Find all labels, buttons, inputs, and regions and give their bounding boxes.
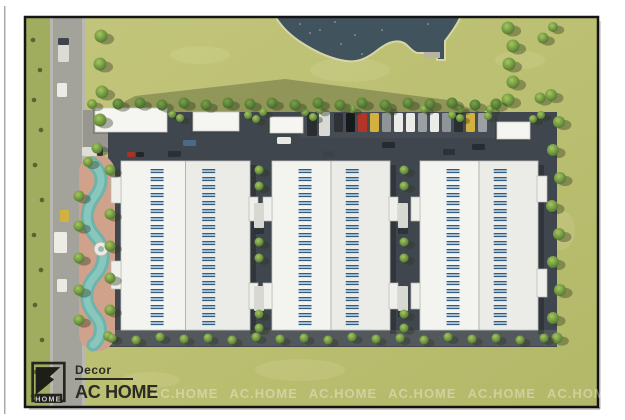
roof-skylight: [151, 265, 164, 266]
roof-skylight: [346, 180, 359, 181]
car: [183, 140, 196, 146]
roof-skylight: [151, 201, 164, 202]
roof-skylight: [299, 273, 312, 274]
palm-tree: [201, 100, 212, 111]
roof-skylight: [346, 201, 359, 202]
palm-tree: [470, 100, 481, 111]
grass-left-strip: [25, 17, 50, 407]
watermark-text: AC.HOME: [309, 386, 377, 401]
car: [323, 151, 334, 157]
office-building: [497, 122, 530, 139]
car: [443, 149, 455, 155]
shrub: [33, 303, 38, 308]
palm-tree: [113, 99, 124, 110]
warehouse-roof-half-tint: [331, 161, 390, 330]
roof-skylight: [299, 225, 312, 226]
roof-skylight: [346, 252, 359, 253]
tree: [492, 334, 501, 343]
tree: [444, 333, 453, 342]
roof-skylight: [202, 196, 215, 197]
palm-tree: [403, 98, 414, 109]
roof-skylight: [202, 188, 215, 189]
tree: [74, 221, 85, 232]
tree: [400, 324, 409, 333]
roof-skylight: [494, 252, 507, 253]
roof-skylight: [202, 260, 215, 261]
tree: [83, 157, 93, 167]
roof-skylight: [202, 249, 215, 250]
road-vehicle: [57, 83, 67, 97]
roof-skylight: [346, 281, 359, 282]
watermark-row: AC.HOME AC.HOME AC.HOME AC.HOME AC.HOME …: [150, 386, 625, 401]
roof-skylight: [346, 217, 359, 218]
roof-skylight: [299, 220, 312, 221]
roof-skylight: [494, 180, 507, 181]
pond-sparkle: [354, 34, 356, 36]
tree: [94, 114, 107, 127]
roof-skylight: [151, 321, 164, 322]
tree: [538, 33, 549, 44]
roof-skylight: [494, 212, 507, 213]
dock-truck-cab: [398, 228, 408, 234]
roof-skylight: [494, 289, 507, 290]
roof-skylight: [447, 281, 460, 282]
roof-skylight: [299, 201, 312, 202]
roof-skylight: [494, 188, 507, 189]
roof-skylight: [346, 321, 359, 322]
roof-skylight: [299, 204, 312, 205]
roof-skylight: [494, 217, 507, 218]
car: [472, 144, 485, 150]
roof-skylight: [346, 172, 359, 173]
roof-skylight: [202, 225, 215, 226]
roof-skylight: [346, 233, 359, 234]
tree: [324, 336, 333, 345]
roof-skylight: [447, 273, 460, 274]
tree: [502, 22, 515, 35]
roof-skylight: [202, 300, 215, 301]
roof-skylight: [346, 292, 359, 293]
tree: [554, 284, 566, 296]
parked-car: [382, 113, 391, 132]
pond-sparkle: [381, 29, 383, 31]
logo-block: HOME Decor AC HOME: [30, 360, 158, 406]
palm-tree: [447, 98, 458, 109]
roof-skylight: [494, 276, 507, 277]
roof-skylight: [151, 172, 164, 173]
roof-skylight: [202, 228, 215, 229]
roof-skylight: [346, 169, 359, 170]
roof-skylight: [494, 268, 507, 269]
shrub: [40, 338, 45, 343]
roof-skylight: [151, 228, 164, 229]
roof-skylight: [346, 220, 359, 221]
tree: [252, 115, 260, 123]
roof-skylight: [151, 252, 164, 253]
grass-patch: [170, 46, 230, 64]
tree: [92, 143, 103, 154]
palm-tree: [135, 98, 146, 109]
tree: [132, 336, 141, 345]
tree: [456, 114, 464, 122]
roof-skylight: [346, 193, 359, 194]
roof-skylight: [494, 196, 507, 197]
roof-skylight: [299, 177, 312, 178]
loading-dock-canopy: [537, 176, 547, 202]
roof-skylight: [299, 300, 312, 301]
roof-skylight: [202, 273, 215, 274]
roof-skylight: [151, 233, 164, 234]
palm-tree: [491, 99, 502, 110]
tree: [105, 209, 116, 220]
tree: [300, 334, 309, 343]
tree: [105, 165, 116, 176]
roof-skylight: [202, 316, 215, 317]
roof-skylight: [151, 308, 164, 309]
roof-skylight: [494, 257, 507, 258]
roof-skylight: [494, 313, 507, 314]
parked-car: [370, 113, 379, 132]
tree: [548, 22, 558, 32]
loading-dock-canopy: [263, 197, 272, 221]
car: [382, 142, 395, 148]
roof-skylight: [151, 249, 164, 250]
parked-car: [406, 113, 415, 132]
roof-skylight: [299, 209, 312, 210]
palm-tree: [357, 98, 368, 109]
roof-skylight: [202, 289, 215, 290]
warehouse-roof-half-tint: [479, 161, 538, 330]
tree: [95, 30, 108, 43]
palm-tree: [380, 100, 391, 111]
roof-skylight: [346, 204, 359, 205]
tree: [74, 253, 85, 264]
roof-skylight: [346, 209, 359, 210]
roof-skylight: [299, 281, 312, 282]
roof-skylight: [151, 305, 164, 306]
road-vehicle: [58, 45, 69, 62]
roof-skylight: [346, 188, 359, 189]
roof-skylight: [447, 321, 460, 322]
roof-skylight: [202, 281, 215, 282]
roof-skylight: [447, 300, 460, 301]
roof-skylight: [299, 169, 312, 170]
roof-skylight: [299, 324, 312, 325]
fountain-center: [98, 246, 104, 252]
roof-skylight: [151, 273, 164, 274]
tree: [74, 285, 85, 296]
roof-skylight: [447, 209, 460, 210]
roof-skylight: [299, 241, 312, 242]
watermark-text: AC.HOME: [150, 386, 218, 401]
roof-skylight: [299, 180, 312, 181]
roof-skylight: [299, 249, 312, 250]
loading-dock-canopy: [111, 177, 121, 203]
pond-sparkle: [334, 21, 336, 23]
tree: [105, 273, 116, 284]
tree: [503, 58, 516, 71]
palm-tree: [245, 99, 256, 110]
roof-skylight: [346, 289, 359, 290]
roof-skylight: [447, 260, 460, 261]
roof-skylight: [494, 265, 507, 266]
loading-dock-canopy: [389, 197, 398, 221]
roof-skylight: [299, 233, 312, 234]
roof-skylight: [151, 300, 164, 301]
watermark-text: AC.HOME: [468, 386, 536, 401]
roof-skylight: [494, 185, 507, 186]
tree: [507, 76, 520, 89]
car: [168, 151, 181, 157]
brand-main-label: AC HOME: [75, 382, 158, 403]
brand-top-label: Decor: [75, 363, 133, 380]
roof-skylight: [151, 324, 164, 325]
roof-skylight: [494, 228, 507, 229]
roof-skylight: [151, 297, 164, 298]
roof-skylight: [494, 204, 507, 205]
roof-skylight: [447, 228, 460, 229]
pond-dock: [424, 52, 440, 58]
roof-skylight: [494, 281, 507, 282]
roof-skylight: [299, 265, 312, 266]
roof-skylight: [346, 308, 359, 309]
page-edge-line: [4, 6, 6, 414]
roof-skylight: [299, 196, 312, 197]
roof-skylight: [346, 249, 359, 250]
car: [136, 152, 144, 157]
roof-skylight: [346, 265, 359, 266]
roof-skylight: [151, 169, 164, 170]
tree: [400, 310, 409, 319]
roof-skylight: [151, 196, 164, 197]
tree: [507, 40, 520, 53]
roof-skylight: [447, 201, 460, 202]
roof-skylight: [447, 276, 460, 277]
roof-skylight: [494, 321, 507, 322]
roof-skylight: [494, 324, 507, 325]
roof-skylight: [202, 292, 215, 293]
roof-skylight: [202, 169, 215, 170]
tree: [553, 228, 565, 240]
tree: [545, 89, 557, 101]
roof-skylight: [202, 209, 215, 210]
roof-skylight: [299, 188, 312, 189]
roof-skylight: [447, 313, 460, 314]
palm-tree: [267, 98, 278, 109]
roof-skylight: [151, 257, 164, 258]
roof-skylight: [346, 305, 359, 306]
dock-truck-trailer: [398, 203, 408, 228]
frame-shadow-bottom: [29, 407, 600, 410]
pond-sparkle: [361, 53, 363, 55]
roof-skylight: [202, 217, 215, 218]
roof-skylight: [447, 249, 460, 250]
roof-skylight: [151, 236, 164, 237]
roof-skylight: [447, 204, 460, 205]
roof-skylight: [151, 281, 164, 282]
roof-skylight: [202, 220, 215, 221]
roof-skylight: [346, 196, 359, 197]
pond-sparkle: [299, 23, 301, 25]
roof-skylight: [447, 180, 460, 181]
roof-skylight: [447, 217, 460, 218]
roof-skylight: [299, 289, 312, 290]
roof-skylight: [151, 177, 164, 178]
roof-skylight: [151, 260, 164, 261]
roof-skylight: [447, 172, 460, 173]
roof-skylight: [202, 276, 215, 277]
office-building: [270, 117, 303, 133]
roof-skylight: [447, 289, 460, 290]
tree: [204, 334, 213, 343]
parked-car: [394, 113, 403, 132]
roof-skylight: [151, 316, 164, 317]
dock-truck-trailer: [398, 286, 408, 311]
roof-skylight: [202, 297, 215, 298]
roof-skylight: [494, 225, 507, 226]
office-building: [193, 112, 239, 131]
dock-truck-trailer: [254, 286, 264, 311]
roof-skylight: [494, 236, 507, 237]
roof-skylight: [447, 297, 460, 298]
roof-skylight: [299, 193, 312, 194]
tree: [276, 335, 285, 344]
roof-skylight: [202, 177, 215, 178]
roof-skylight: [202, 313, 215, 314]
loading-dock-canopy: [411, 283, 420, 309]
roof-skylight: [346, 297, 359, 298]
grass-patch: [255, 359, 345, 381]
loading-dock-canopy: [263, 283, 272, 309]
roof-skylight: [447, 308, 460, 309]
roof-skylight: [346, 276, 359, 277]
tree: [516, 336, 525, 345]
roof-skylight: [447, 268, 460, 269]
roof-skylight: [202, 244, 215, 245]
roof-skylight: [494, 209, 507, 210]
roof-skylight: [202, 212, 215, 213]
tree: [255, 324, 264, 333]
roof-skylight: [447, 212, 460, 213]
road-vehicle: [54, 232, 67, 253]
roof-skylight: [151, 244, 164, 245]
roof-skylight: [494, 201, 507, 202]
palm-tree: [179, 98, 190, 109]
roof-skylight: [151, 193, 164, 194]
roof-skylight: [447, 233, 460, 234]
road-curb-left: [50, 17, 53, 407]
roof-skylight: [202, 265, 215, 266]
site-plan-image: [0, 0, 625, 420]
roof-skylight: [151, 180, 164, 181]
roof-skylight: [299, 217, 312, 218]
pond-sparkle: [340, 43, 342, 45]
roof-skylight: [346, 236, 359, 237]
roof-skylight: [202, 241, 215, 242]
pond-sparkle: [427, 23, 429, 25]
roof-skylight: [299, 308, 312, 309]
tree: [180, 335, 189, 344]
tree: [553, 116, 565, 128]
tree: [529, 115, 537, 123]
parked-car: [430, 113, 439, 132]
tree: [537, 111, 545, 119]
roof-skylight: [346, 300, 359, 301]
roof-skylight: [447, 257, 460, 258]
tree: [400, 254, 409, 263]
dock-truck-trailer: [254, 203, 264, 228]
roof-skylight: [494, 316, 507, 317]
home-logo-icon: HOME: [30, 360, 68, 406]
roof-skylight: [494, 172, 507, 173]
roof-skylight: [151, 289, 164, 290]
tree: [255, 166, 264, 175]
roof-skylight: [447, 185, 460, 186]
watermark-text: AC.HOME: [388, 386, 456, 401]
tree: [547, 144, 559, 156]
roof-skylight: [346, 313, 359, 314]
roof-skylight: [202, 252, 215, 253]
car: [277, 137, 291, 144]
roof-skylight: [299, 185, 312, 186]
roof-skylight: [299, 212, 312, 213]
roof-skylight: [299, 172, 312, 173]
roof-skylight: [346, 273, 359, 274]
roof-skylight: [447, 265, 460, 266]
tree: [396, 334, 405, 343]
tree: [255, 310, 264, 319]
tree: [554, 172, 566, 184]
roof-skylight: [494, 284, 507, 285]
roof-skylight: [151, 217, 164, 218]
shrub: [33, 163, 38, 168]
dock-truck-cab: [254, 228, 264, 234]
tree: [546, 200, 558, 212]
roof-skylight: [346, 324, 359, 325]
tree: [176, 114, 184, 122]
tree: [105, 241, 116, 252]
roof-skylight: [202, 193, 215, 194]
roof-skylight: [151, 225, 164, 226]
roof-skylight: [447, 193, 460, 194]
roof-skylight: [202, 233, 215, 234]
roof-skylight: [447, 316, 460, 317]
roof-skylight: [151, 188, 164, 189]
roof-skylight: [202, 201, 215, 202]
roof-skylight: [447, 284, 460, 285]
roof-skylight: [299, 244, 312, 245]
roof-skylight: [299, 297, 312, 298]
tree: [87, 99, 97, 109]
pond-sparkle: [319, 29, 321, 31]
roof-skylight: [346, 244, 359, 245]
frame-shadow-right: [598, 21, 601, 409]
roof-skylight: [447, 244, 460, 245]
pond-sparkle: [309, 32, 311, 34]
shrub: [32, 233, 37, 238]
shrub: [38, 68, 43, 73]
parked-car: [418, 113, 427, 132]
tree: [228, 336, 237, 345]
roof-skylight: [346, 257, 359, 258]
roof-skylight: [346, 260, 359, 261]
road-vehicle: [57, 279, 67, 292]
tree: [255, 238, 264, 247]
shrub: [39, 128, 44, 133]
tree: [255, 182, 264, 191]
roof-skylight: [494, 292, 507, 293]
palm-tree: [290, 100, 301, 111]
